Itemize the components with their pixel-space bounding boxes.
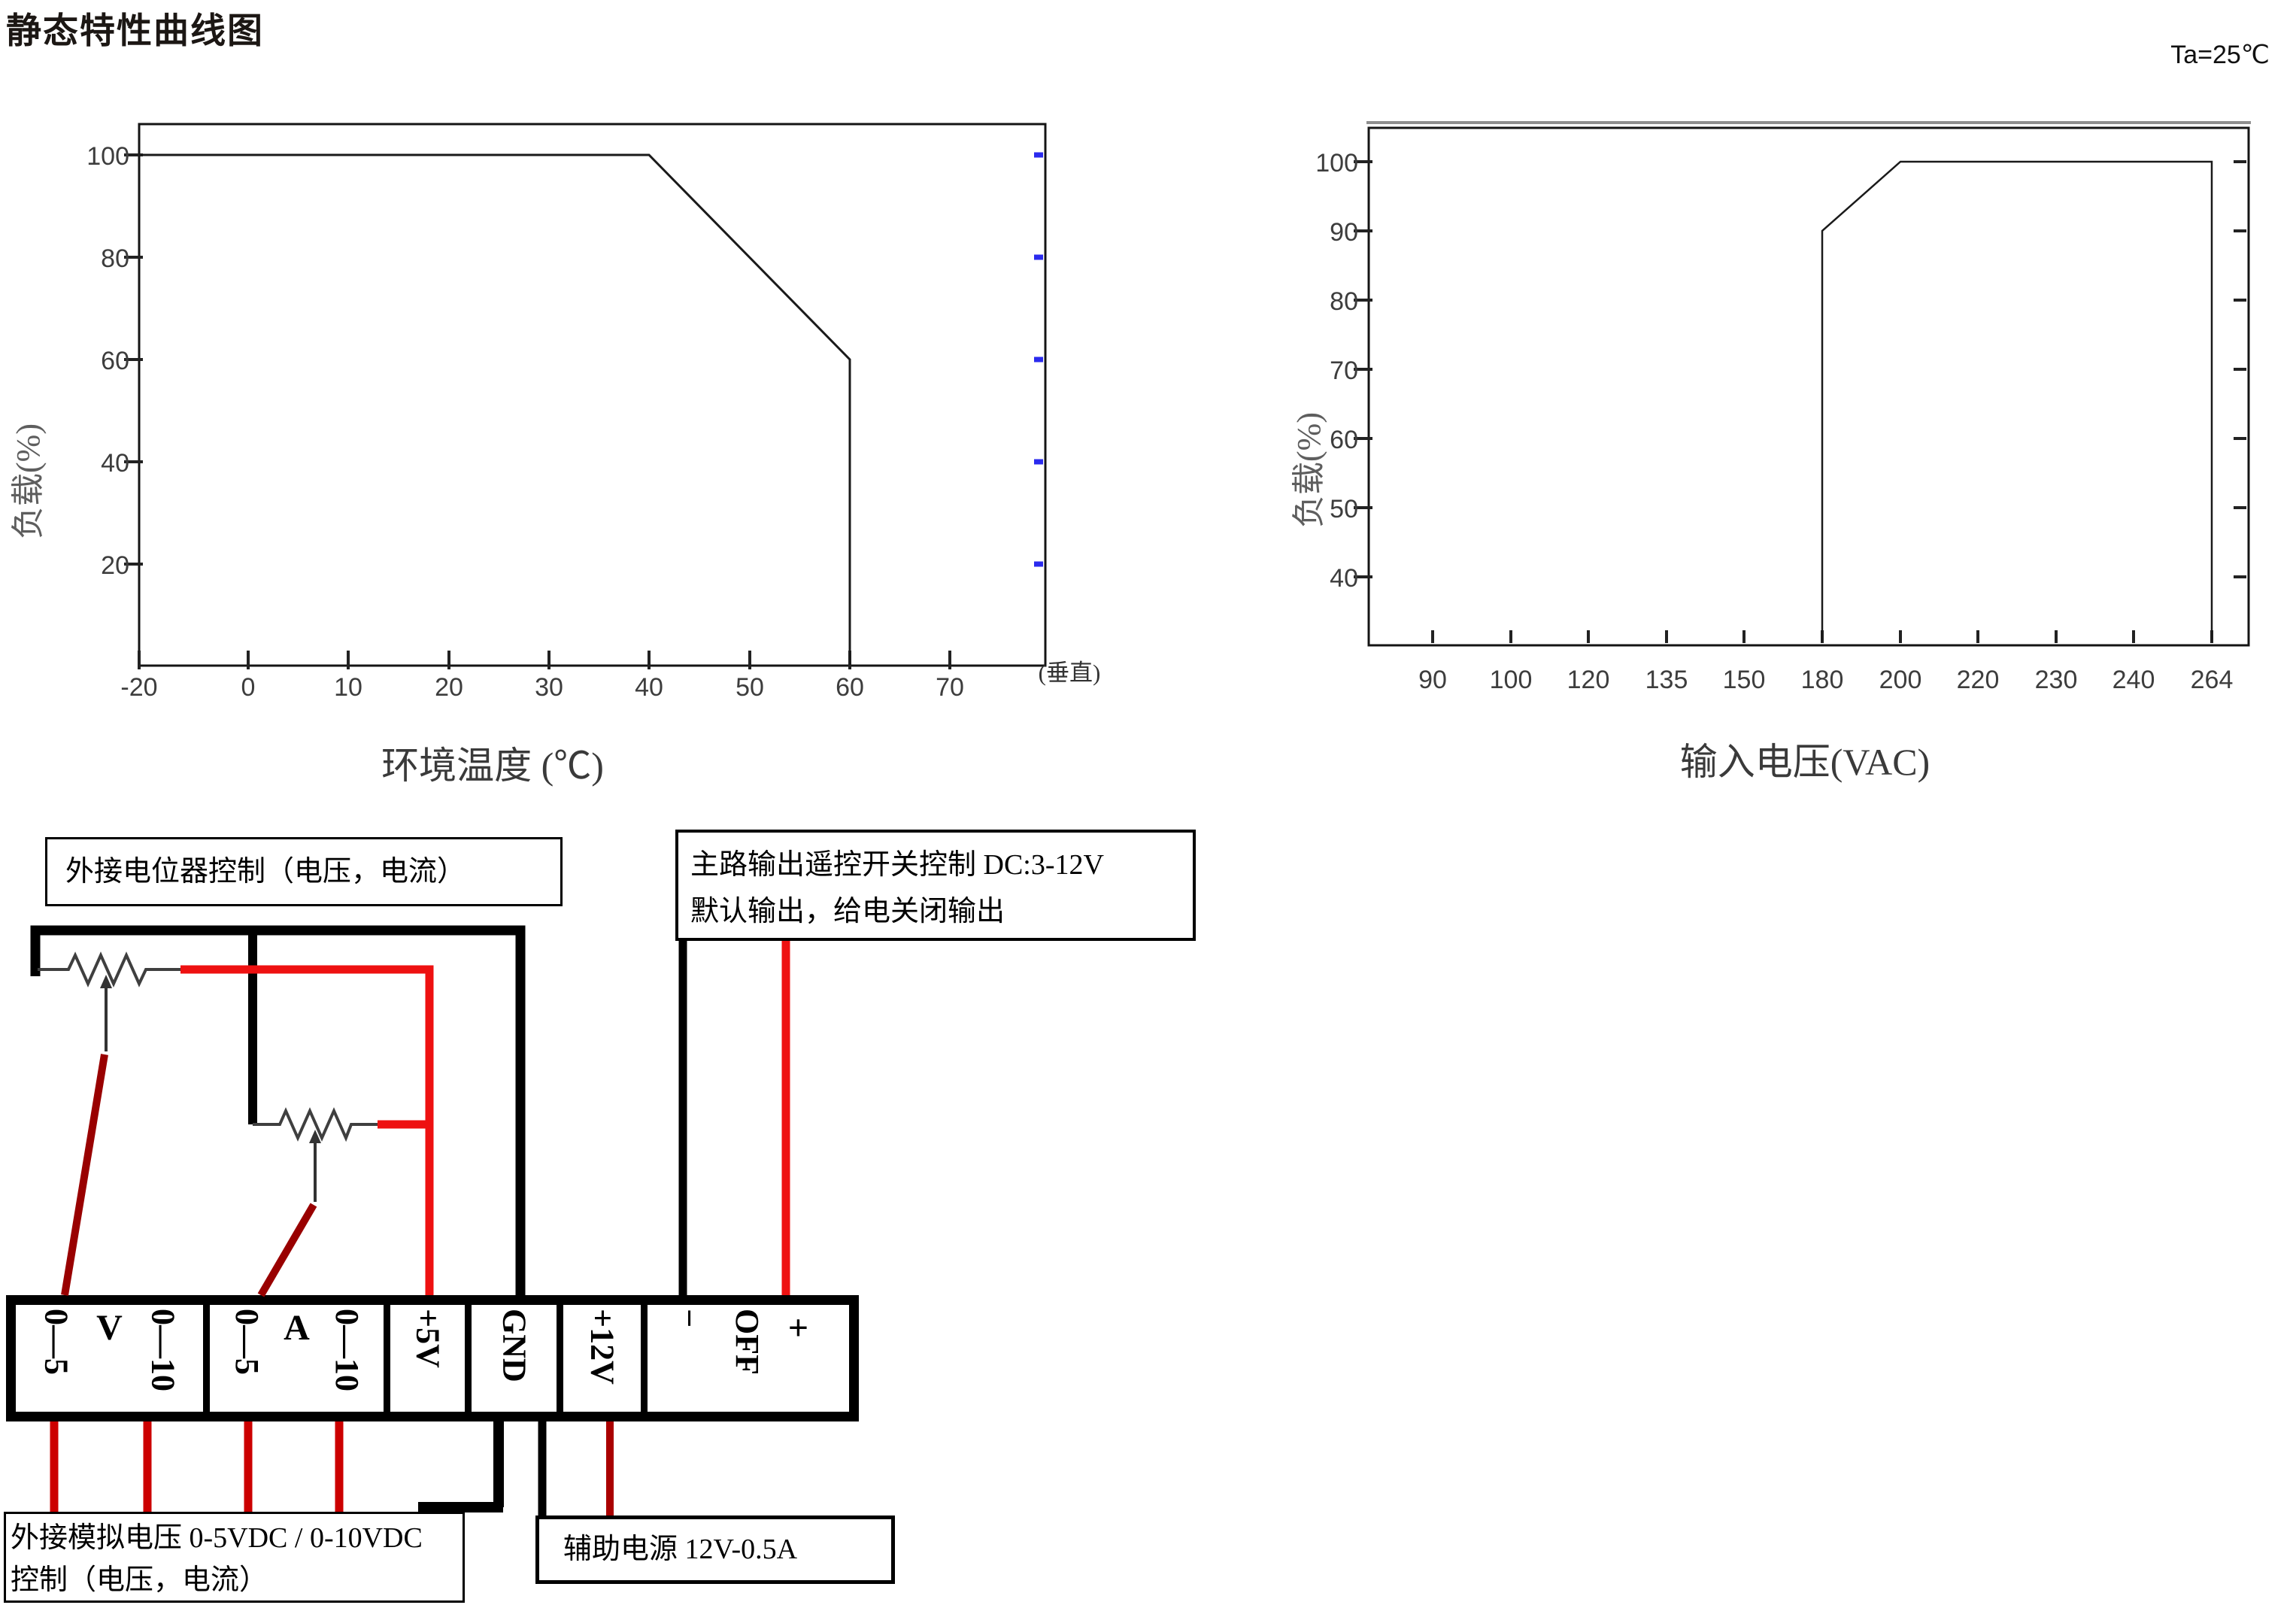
y-tick-label: 20 xyxy=(101,551,129,580)
x-tick-label: 120 xyxy=(1567,666,1610,694)
ambient-temp-annotation: Ta=25℃ xyxy=(2170,41,2270,69)
y-tick-label: 100 xyxy=(86,142,129,171)
x-tick-label: 70 xyxy=(936,673,964,702)
terminal-label-voltage-program-0: 0—5 xyxy=(40,1309,73,1375)
x-tick-label: 100 xyxy=(1490,666,1533,694)
callout-pot-control-text: 外接电位器控制（电压，电流） xyxy=(65,856,466,887)
terminal-cell-remote-onoff: −OFF+ xyxy=(641,1305,833,1412)
y-tick-label: 80 xyxy=(101,244,129,273)
pot2-wiper-arrowhead xyxy=(309,1130,321,1143)
y-tick-label: 60 xyxy=(1330,426,1358,454)
y-axis-title: 负载(%) xyxy=(1291,412,1327,528)
y-tick-label: 50 xyxy=(1330,495,1358,523)
y-tick-label: 40 xyxy=(101,449,129,478)
x-tick-label: 220 xyxy=(1957,666,2000,694)
callout-analog-control: 外接模拟电压 0-5VDC / 0-10VDC 控制（电压，电流） xyxy=(4,1512,465,1603)
potentiometer-current xyxy=(253,1111,379,1138)
gnd-wire-left-black xyxy=(418,1421,503,1507)
terminal-cell-current-program: 0—5A0—10 xyxy=(203,1305,384,1412)
x-tick-label: 135 xyxy=(1645,666,1688,694)
plus5v-wire-red xyxy=(180,969,429,1295)
terminal-label-voltage-program-2: 0—10 xyxy=(146,1309,179,1391)
y-tick-label: 80 xyxy=(1330,287,1358,316)
callout-remote-line1: 主路输出遥控开关控制 DC:3-12V xyxy=(690,842,1193,888)
x-axis-suffix-label: (垂直) xyxy=(1039,660,1101,686)
y-tick-label: 100 xyxy=(1315,149,1358,177)
terminal-label-current-program-2: 0—10 xyxy=(330,1309,363,1391)
terminal-label-gnd-0: GND xyxy=(498,1309,531,1382)
chart-plot-border xyxy=(1369,128,2249,645)
terminal-label-current-program-1: A xyxy=(284,1310,310,1346)
terminal-label-plus12v-0: +12V xyxy=(586,1309,619,1385)
bus-wire-black xyxy=(35,930,520,1295)
terminal-cell-plus12v: +12V xyxy=(557,1305,641,1412)
callout-aux-power: 辅助电源 12V-0.5A xyxy=(535,1515,895,1584)
y-tick-label: 70 xyxy=(1330,356,1358,385)
callout-analog-line2: 控制（电压，电流） xyxy=(11,1559,463,1601)
derating-charts: 10080604020-20010203040506070(垂直)环境温度 (℃… xyxy=(0,0,2296,827)
terminal-block: 0—5V0—100—5A0—10+5VGND+12V−OFF+ xyxy=(6,1295,859,1421)
x-tick-label: 60 xyxy=(836,673,864,702)
terminal-cell-voltage-program: 0—5V0—10 xyxy=(16,1305,203,1412)
x-tick-label: 240 xyxy=(2113,666,2155,694)
y-axis-title: 负载(%) xyxy=(10,423,47,539)
potentiometer-voltage xyxy=(38,955,182,984)
terminal-label-remote-onoff-0: − xyxy=(672,1309,705,1327)
callout-remote-switch: 主路输出遥控开关控制 DC:3-12V 默认输出，给电关闭输出 xyxy=(675,830,1196,941)
x-tick-label: 50 xyxy=(736,673,764,702)
x-tick-label: 90 xyxy=(1418,666,1447,694)
callout-aux-text: 辅助电源 12V-0.5A xyxy=(563,1534,797,1565)
callout-analog-line1: 外接模拟电压 0-5VDC / 0-10VDC xyxy=(11,1517,463,1559)
pot1-wiper-arrowhead xyxy=(100,975,112,988)
terminal-label-remote-onoff-2: + xyxy=(788,1310,808,1346)
x-tick-label: 264 xyxy=(2191,666,2234,694)
x-tick-label: 230 xyxy=(2035,666,2078,694)
terminal-label-plus5v-0: +5V xyxy=(411,1309,444,1368)
x-axis-title: 输入电压(VAC) xyxy=(1680,741,1930,783)
y-tick-label: 90 xyxy=(1330,218,1358,247)
terminal-label-remote-onoff-1: OFF xyxy=(730,1309,763,1375)
x-tick-label: 0 xyxy=(241,673,256,702)
x-axis-title: 环境温度 (℃) xyxy=(381,745,604,787)
pot1-wiper-wire-darkred xyxy=(65,1054,105,1295)
x-tick-label: 40 xyxy=(635,673,663,702)
x-tick-label: 30 xyxy=(535,673,563,702)
callout-pot-control: 外接电位器控制（电压，电流） xyxy=(45,837,563,906)
derating-curve xyxy=(1822,162,2212,642)
terminal-cell-plus5v: +5V xyxy=(384,1305,465,1412)
x-tick-label: -20 xyxy=(120,673,157,702)
x-tick-label: 180 xyxy=(1801,666,1844,694)
pot2-wiper-wire-darkred xyxy=(261,1205,314,1295)
callout-remote-line2: 默认输出，给电关闭输出 xyxy=(690,888,1193,935)
chart-plot-border xyxy=(139,124,1045,666)
x-tick-label: 10 xyxy=(334,673,362,702)
terminal-label-current-program-0: 0—5 xyxy=(230,1309,263,1375)
terminal-label-voltage-program-1: V xyxy=(96,1310,123,1346)
derating-curve xyxy=(139,155,850,665)
x-tick-label: 150 xyxy=(1723,666,1766,694)
terminal-cell-gnd: GND xyxy=(465,1305,557,1412)
x-tick-label: 20 xyxy=(435,673,463,702)
y-tick-label: 60 xyxy=(101,347,129,375)
x-tick-label: 200 xyxy=(1879,666,1922,694)
y-tick-label: 40 xyxy=(1330,564,1358,593)
datasheet-page: 静态特性曲线图 10080604020-20010203040506070(垂直… xyxy=(0,0,2296,1605)
